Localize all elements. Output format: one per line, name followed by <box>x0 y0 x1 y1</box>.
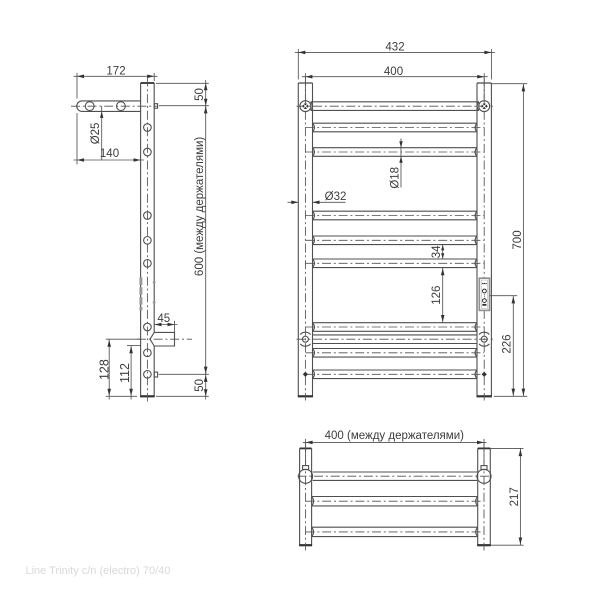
svg-text:432: 432 <box>385 42 404 54</box>
svg-text:Ø32: Ø32 <box>325 191 347 203</box>
svg-text:226: 226 <box>502 334 514 353</box>
svg-text:140: 140 <box>100 148 119 160</box>
svg-text:400 (между держателями): 400 (между держателями) <box>325 430 464 442</box>
svg-text:600 (между держателями): 600 (между держателями) <box>194 137 206 276</box>
svg-text:700: 700 <box>512 230 524 249</box>
svg-text:50: 50 <box>194 88 206 101</box>
svg-text:112: 112 <box>118 363 132 383</box>
svg-text:172: 172 <box>106 65 125 77</box>
svg-text:400: 400 <box>384 66 403 78</box>
svg-text:Ø18: Ø18 <box>389 167 401 189</box>
svg-text:126: 126 <box>431 286 443 305</box>
svg-text:50: 50 <box>194 379 206 392</box>
svg-text:217: 217 <box>509 487 521 506</box>
svg-text:Ø25: Ø25 <box>90 123 102 145</box>
svg-text:Line Trinity c/n (electro) 70/: Line Trinity c/n (electro) 70/40 <box>26 565 171 577</box>
svg-text:128: 128 <box>97 359 111 380</box>
svg-text:45: 45 <box>157 313 170 325</box>
svg-text:34: 34 <box>431 245 443 258</box>
